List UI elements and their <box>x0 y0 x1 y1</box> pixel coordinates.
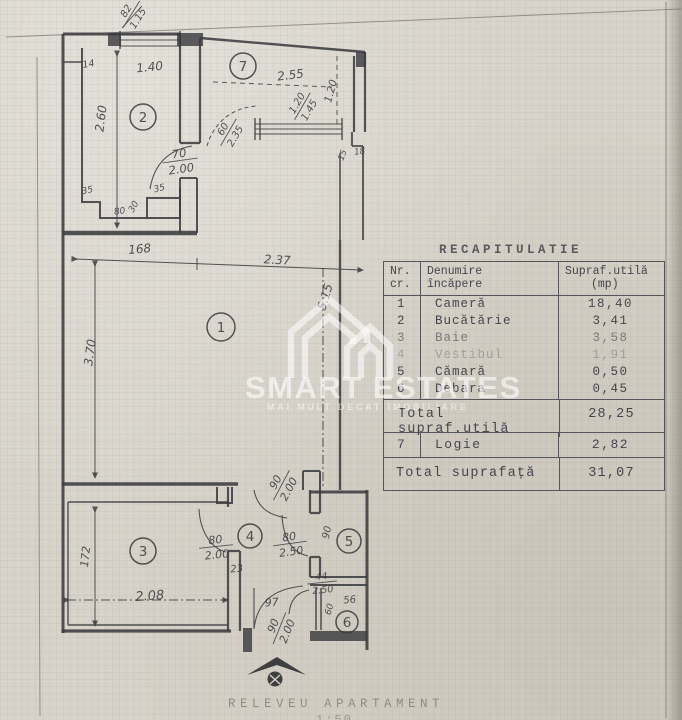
recap-header-area: Supraf.utilă(mp) <box>559 262 662 295</box>
svg-text:97: 97 <box>264 596 279 610</box>
svg-text:30: 30 <box>127 199 142 214</box>
svg-text:18: 18 <box>354 146 367 157</box>
room-number: 2 <box>139 110 148 126</box>
dimension-label: 35 <box>153 183 167 196</box>
dimension-label: 1.201.45 <box>285 87 322 127</box>
dimension-label: 168 <box>128 241 152 257</box>
table-row-cell: Cameră <box>421 296 558 313</box>
dimension-label: 821.15 <box>114 0 152 35</box>
scan-shadow-edge <box>666 0 682 720</box>
svg-text:2.55: 2.55 <box>276 66 304 83</box>
svg-text:90: 90 <box>321 525 334 540</box>
dimension-label: 602.35 <box>211 113 248 153</box>
room-number: 5 <box>345 534 354 550</box>
svg-text:2.50: 2.50 <box>312 584 334 597</box>
table-row-cell: 3 <box>384 330 420 347</box>
plan-scale: 1:50 <box>316 713 353 720</box>
table-row-cell: 3,41 <box>559 313 662 330</box>
dimension-label: 702.00 <box>161 144 200 178</box>
recap-table: RECAPITULATIE Nr.cr. Denumireîncăpere Su… <box>383 243 665 491</box>
logie-value: 2,82 <box>559 433 662 457</box>
recap-title: RECAPITULATIE <box>383 243 665 261</box>
plan-caption: RELEVEU APARTAMENT <box>228 697 444 711</box>
table-row-cell: Debara <box>421 381 558 398</box>
room-number-circles: 1234567 <box>130 53 361 633</box>
dimension-label: 56 <box>343 594 357 606</box>
recap-header-name: Denumireîncăpere <box>421 262 559 295</box>
svg-text:172: 172 <box>78 546 93 568</box>
room-number: 1 <box>217 320 226 336</box>
svg-text:1.40: 1.40 <box>136 59 164 76</box>
dimension-label: 902.00 <box>262 464 303 507</box>
table-row-cell: Baie <box>421 330 558 347</box>
table-row-cell: 1 <box>384 296 420 313</box>
dimension-label: 2.08 <box>135 588 165 605</box>
table-row-cell: 4 <box>384 347 420 364</box>
room-number: 4 <box>246 529 255 545</box>
dimension-label: 35 <box>81 185 95 197</box>
svg-text:5.15: 5.15 <box>315 282 336 312</box>
table-row-cell: Vestibul <box>421 347 558 364</box>
dimension-label: 2.60 <box>92 104 109 133</box>
svg-text:80: 80 <box>281 530 297 545</box>
svg-text:80: 80 <box>208 533 223 547</box>
dimension-label: 802.50 <box>271 528 308 560</box>
dimension-label: 902.00 <box>261 608 300 650</box>
dimension-label: 5.15 <box>315 282 336 312</box>
total-util-row: Total supraf.utilă 28,25 <box>384 400 664 433</box>
recap-body: 123456 CamerăBucătărieBaieVestibulCămară… <box>384 296 664 400</box>
table-row-cell: 0,50 <box>559 364 662 381</box>
total-row: Total suprafață 31,07 <box>384 458 664 490</box>
table-row-cell: 18,40 <box>559 296 662 313</box>
total-util-label: Total supraf.utilă <box>384 400 560 437</box>
dimension-label: 23 <box>230 563 244 575</box>
svg-text:2.08: 2.08 <box>135 588 165 605</box>
svg-text:15: 15 <box>337 149 350 163</box>
table-row-cell: Cămară <box>421 364 558 381</box>
svg-text:23: 23 <box>230 563 244 575</box>
svg-text:14: 14 <box>82 58 96 71</box>
total-util-value: 28,25 <box>560 400 663 437</box>
svg-text:2.00: 2.00 <box>168 160 195 177</box>
scanned-floorplan-page: 1234567 821.15141.402.60702.00353580302.… <box>0 0 682 720</box>
dimension-label: 802.00 <box>198 532 235 563</box>
dimension-label: 172 <box>78 546 93 568</box>
room-number: 7 <box>239 59 248 75</box>
svg-text:1.20: 1.20 <box>322 78 340 104</box>
svg-text:56: 56 <box>343 594 357 606</box>
svg-text:2.00: 2.00 <box>204 547 230 562</box>
total-value: 31,07 <box>560 458 663 490</box>
dimension-label: 30 <box>127 199 142 214</box>
room-number: 6 <box>343 615 352 631</box>
north-arrow-icon <box>247 657 306 687</box>
svg-text:70: 70 <box>171 146 187 162</box>
dimension-label: 97 <box>264 596 279 610</box>
dimension-label: 18 <box>354 146 367 157</box>
logie-name: Logie <box>421 433 559 457</box>
dimension-label: 80 <box>113 206 126 218</box>
dimension-label: 1.20 <box>322 78 340 104</box>
dimension-label: 3.70 <box>81 338 99 367</box>
dimension-label: 15 <box>337 149 350 163</box>
logie-nr: 7 <box>384 433 421 457</box>
dimension-label: 2.37 <box>264 252 292 267</box>
table-row-cell: 6 <box>384 381 420 398</box>
svg-text:2.60: 2.60 <box>92 104 109 133</box>
table-row-cell: 3,58 <box>559 330 662 347</box>
table-row-cell: 0,45 <box>559 381 662 398</box>
svg-text:2.50: 2.50 <box>278 544 304 560</box>
svg-text:35: 35 <box>153 183 167 196</box>
svg-text:60: 60 <box>324 602 337 616</box>
dimension-label: 60 <box>324 602 337 616</box>
svg-text:35: 35 <box>81 185 95 197</box>
svg-text:3.70: 3.70 <box>81 338 99 367</box>
table-row-cell: 5 <box>384 364 420 381</box>
svg-text:168: 168 <box>128 241 152 257</box>
recap-header-nr: Nr.cr. <box>384 262 421 295</box>
dimension-label: 14 <box>82 58 96 71</box>
svg-text:44: 44 <box>315 571 328 583</box>
room-number: 3 <box>139 544 148 560</box>
dimension-label: 90 <box>321 525 334 540</box>
dimension-label: 1.40 <box>136 59 164 76</box>
table-row-cell: 1,91 <box>559 347 662 364</box>
logie-row: 7 Logie 2,82 <box>384 433 664 458</box>
recap-header-row: Nr.cr. Denumireîncăpere Supraf.utilă(mp) <box>384 262 664 296</box>
dimension-label: 2.55 <box>276 66 304 83</box>
table-row-cell: 2 <box>384 313 420 330</box>
svg-text:80: 80 <box>113 206 126 218</box>
total-label: Total suprafață <box>384 458 560 490</box>
svg-text:2.37: 2.37 <box>264 252 292 267</box>
table-row-cell: Bucătărie <box>421 313 558 330</box>
